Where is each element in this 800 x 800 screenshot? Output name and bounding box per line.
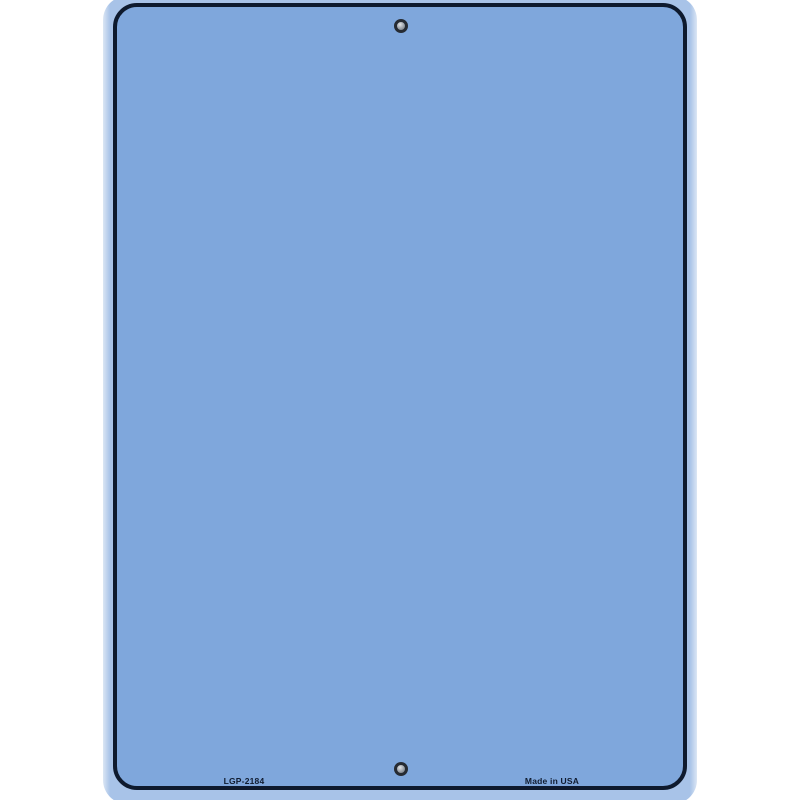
- origin-label: Made in USA: [525, 777, 579, 786]
- sku-label: LGP-2184: [224, 777, 265, 786]
- mounting-hole-top: [394, 19, 408, 33]
- mounting-hole-bottom: [394, 762, 408, 776]
- product-photo: LGP-2184 Made in USA: [0, 0, 800, 800]
- sign-printed-border: [113, 3, 687, 790]
- sign-plate: LGP-2184 Made in USA: [103, 0, 697, 800]
